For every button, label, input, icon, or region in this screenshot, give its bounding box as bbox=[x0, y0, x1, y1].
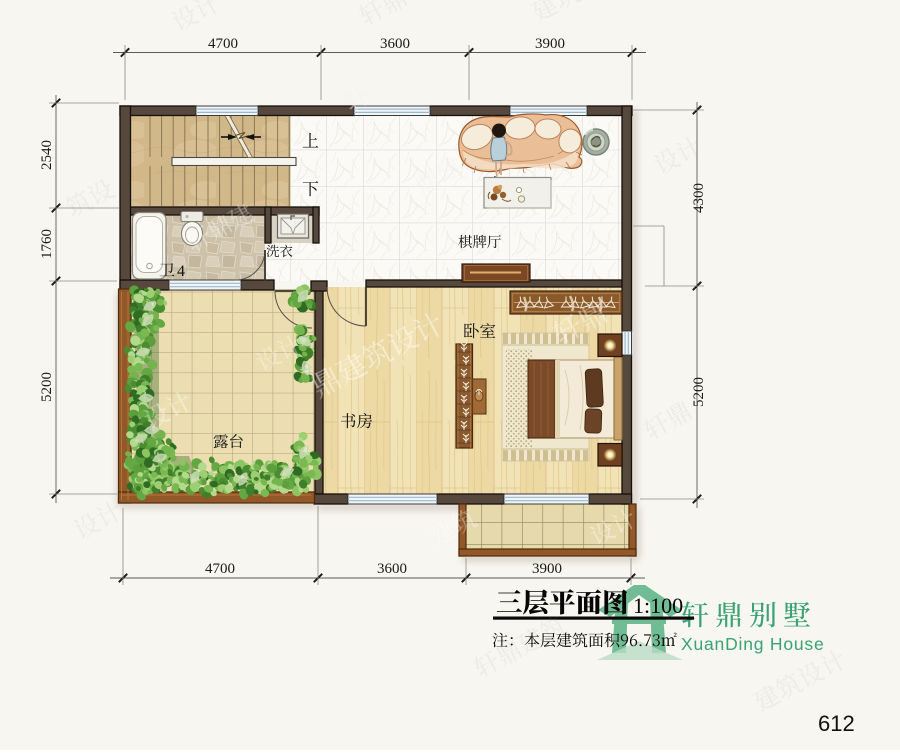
svg-text:4300: 4300 bbox=[691, 183, 707, 213]
svg-text:1:100: 1:100 bbox=[633, 593, 683, 618]
svg-text:4700: 4700 bbox=[205, 561, 235, 577]
svg-text:612: 612 bbox=[818, 711, 855, 736]
svg-text:3900: 3900 bbox=[535, 36, 565, 52]
svg-text:4: 4 bbox=[177, 263, 185, 280]
svg-text:XuanDing House: XuanDing House bbox=[681, 634, 825, 654]
svg-text:3600: 3600 bbox=[377, 561, 407, 577]
svg-text:1760: 1760 bbox=[39, 229, 55, 259]
svg-text:2540: 2540 bbox=[39, 140, 55, 170]
svg-text:5200: 5200 bbox=[691, 377, 707, 407]
svg-text:3600: 3600 bbox=[380, 36, 410, 52]
svg-text:4700: 4700 bbox=[208, 36, 238, 52]
svg-text:5200: 5200 bbox=[39, 372, 55, 402]
svg-text:3900: 3900 bbox=[532, 561, 562, 577]
